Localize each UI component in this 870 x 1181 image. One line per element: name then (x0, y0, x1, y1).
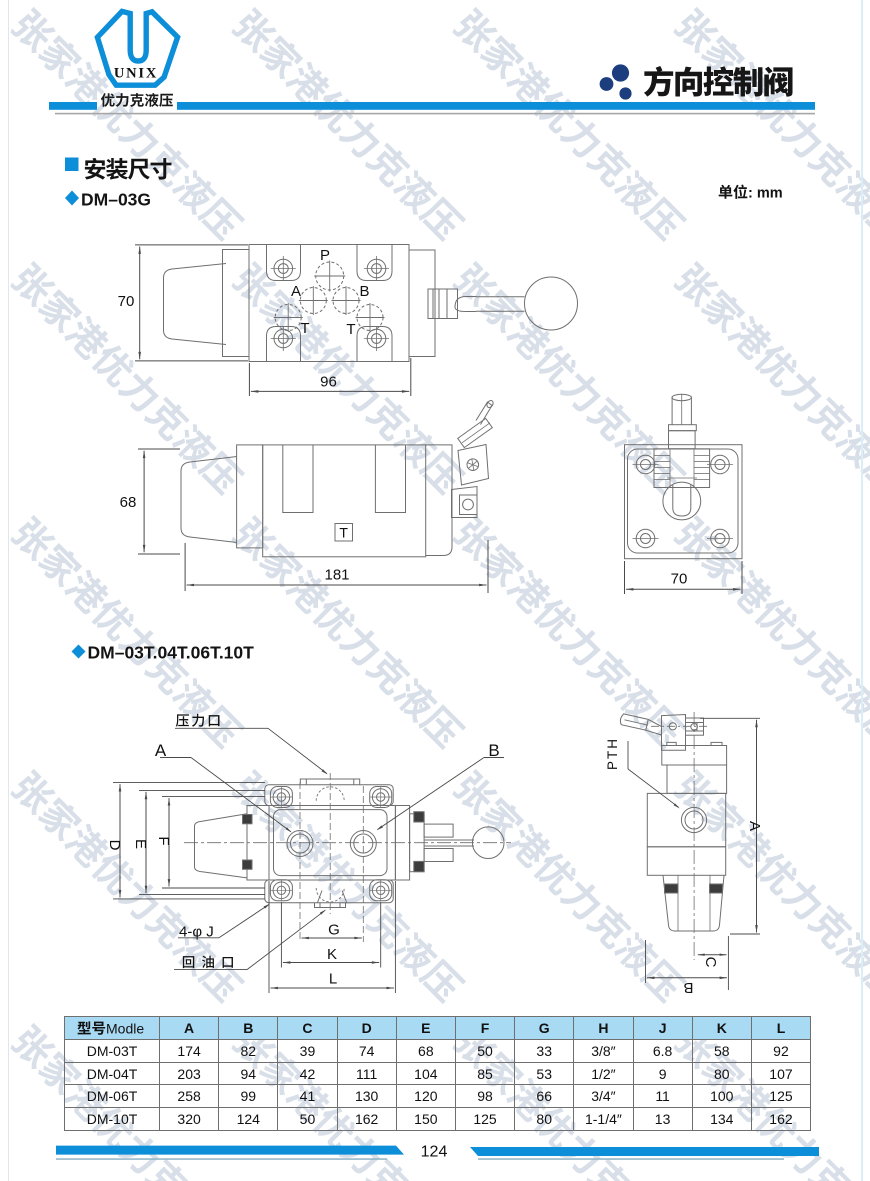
svg-text:A: A (291, 283, 301, 300)
svg-text:G: G (328, 922, 340, 939)
svg-text:Modle: Modle (106, 1020, 144, 1036)
svg-text:B: B (359, 283, 369, 300)
svg-text:124: 124 (421, 1144, 448, 1161)
svg-text:PTH: PTH (605, 737, 620, 770)
svg-text:68: 68 (120, 494, 137, 511)
svg-text:L: L (329, 971, 337, 988)
svg-text:E: E (132, 839, 149, 849)
svg-text:K: K (327, 946, 337, 963)
svg-text:C: C (702, 957, 719, 968)
svg-text:181: 181 (324, 567, 349, 584)
svg-text:D: D (106, 840, 123, 851)
svg-text:T: T (339, 525, 348, 541)
svg-text:70: 70 (671, 571, 688, 588)
svg-text:T: T (300, 320, 309, 337)
svg-text:A: A (746, 821, 763, 831)
svg-text:96: 96 (320, 374, 337, 391)
svg-text:70: 70 (118, 293, 135, 310)
svg-text:P: P (320, 247, 330, 264)
svg-text:F: F (155, 836, 172, 845)
svg-text:T: T (346, 321, 355, 338)
svg-text:B: B (683, 979, 693, 996)
